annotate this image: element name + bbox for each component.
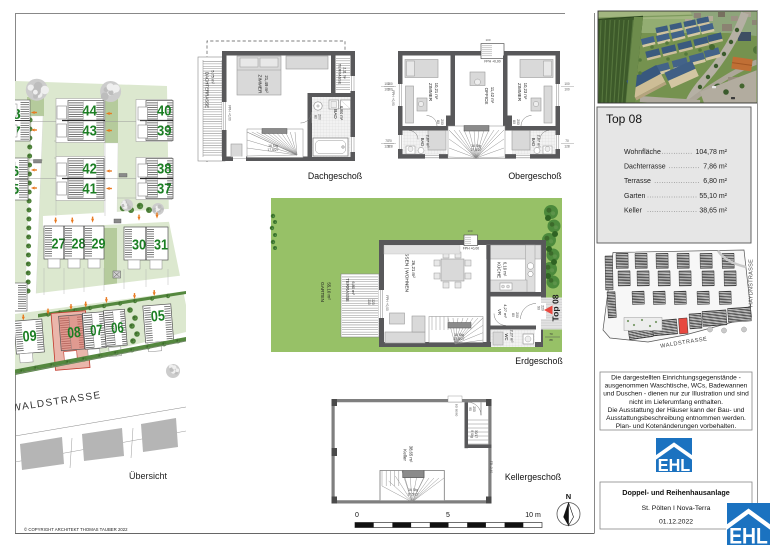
svg-text:100: 100: [467, 229, 472, 233]
svg-text:220: 220: [541, 305, 545, 311]
svg-text:Wohnfläche: Wohnfläche: [624, 149, 661, 156]
svg-text:220: 220: [371, 299, 375, 305]
svg-text:ZIMMER: ZIMMER: [428, 83, 433, 102]
svg-text:6,84 m²: 6,84 m²: [339, 106, 344, 121]
svg-text:27: 27: [52, 236, 66, 253]
svg-text:FPH +0,00: FPH +0,00: [484, 60, 500, 64]
svg-text:40: 40: [157, 103, 172, 120]
svg-text:FB -2,40: FB -2,40: [489, 461, 493, 473]
svg-text:06: 06: [111, 319, 125, 337]
svg-text:43: 43: [82, 123, 97, 140]
svg-text:17,5/27: 17,5/27: [407, 493, 418, 497]
svg-text:Plan- und Kotenänderungen vorb: Plan- und Kotenänderungen vorbehalten.: [616, 423, 737, 430]
svg-text:5,75 m²: 5,75 m²: [210, 70, 215, 84]
svg-text:42: 42: [82, 161, 97, 178]
svg-text:Kellergeschoß: Kellergeschoß: [505, 472, 562, 482]
svg-text:Terrasse: Terrasse: [624, 178, 651, 185]
svg-text:17,5/27: 17,5/27: [267, 148, 278, 152]
svg-text:30/17: 30/17: [474, 430, 478, 438]
svg-text:Erdgeschoß: Erdgeschoß: [515, 356, 563, 366]
svg-text:210: 210: [367, 299, 371, 305]
svg-text:Die dargestellten Einrichtungs: Die dargestellten Einrichtungsgegenständ…: [611, 375, 741, 382]
svg-text:St. Pölten I Nova-Terra: St. Pölten I Nova-Terra: [642, 505, 711, 512]
svg-text:17,5/27: 17,5/27: [470, 148, 481, 152]
svg-text:41: 41: [82, 181, 97, 198]
svg-text:© COPYRIGHT ARCHITEKT THOMAS T: © COPYRIGHT ARCHITEKT THOMAS TAUBER 2022: [24, 527, 128, 532]
svg-text:DACHTERRASSE: DACHTERRASSE: [205, 72, 210, 108]
svg-text:70: 70: [388, 139, 392, 143]
svg-text:Doppel- und Reihenhausanlage: Doppel- und Reihenhausanlage: [622, 488, 729, 497]
svg-text:16 Stg: 16 Stg: [408, 488, 418, 492]
svg-text:30: 30: [132, 237, 146, 254]
svg-text:0: 0: [355, 512, 359, 519]
svg-text:ausgenommen Waschtische, WCs,: ausgenommen Waschtische, WCs, Badewannen: [605, 383, 748, 390]
svg-text:08: 08: [67, 324, 82, 342]
svg-text:WC: WC: [504, 334, 509, 341]
svg-text:44: 44: [82, 103, 97, 120]
svg-text:11,42 m²: 11,42 m²: [490, 87, 495, 104]
svg-text:Garten: Garten: [624, 193, 646, 200]
svg-text:Obergeschoß: Obergeschoß: [508, 171, 562, 181]
svg-text:80: 80: [314, 115, 318, 119]
svg-text:GARTEN: GARTEN: [319, 282, 325, 302]
svg-text:100: 100: [564, 88, 570, 92]
svg-text:HAYDNSTRASSE: HAYDNSTRASSE: [749, 259, 755, 307]
svg-text:09: 09: [22, 328, 37, 346]
svg-text:55,10 m²: 55,10 m²: [699, 193, 727, 200]
svg-text:FPH +0,00: FPH +0,00: [463, 247, 479, 251]
svg-text:2,87 m²: 2,87 m²: [537, 135, 541, 149]
svg-text:N: N: [566, 492, 571, 501]
svg-text:38,65 m²: 38,65 m²: [699, 207, 727, 214]
svg-text:Keller: Keller: [624, 207, 643, 214]
svg-text:100: 100: [387, 88, 393, 92]
svg-text:BD 80/80: BD 80/80: [455, 404, 459, 417]
svg-text:38,65 m²: 38,65 m²: [409, 446, 414, 463]
svg-text:4,27 m²: 4,27 m²: [503, 304, 508, 318]
svg-text:17,5/27: 17,5/27: [453, 337, 464, 341]
svg-text:TERRASSE: TERRASSE: [337, 64, 341, 85]
svg-text:VR: VR: [497, 309, 502, 315]
svg-text:ZIMMER: ZIMMER: [517, 83, 522, 102]
svg-text:7,86 m²: 7,86 m²: [703, 164, 727, 171]
svg-text:100: 100: [387, 82, 393, 86]
svg-text:200: 200: [472, 406, 476, 412]
svg-text:2,27 m²: 2,27 m²: [510, 330, 514, 344]
svg-text:28: 28: [72, 236, 86, 253]
svg-text:TERRASSE: TERRASSE: [345, 278, 350, 302]
svg-text:10,23 m²: 10,23 m²: [523, 83, 528, 100]
svg-text:6,80 m²: 6,80 m²: [703, 178, 727, 185]
svg-text:8 Stg: 8 Stg: [470, 430, 474, 438]
svg-text:70: 70: [565, 139, 569, 143]
svg-text:nicht im Lieferumfang enthalte: nicht im Lieferumfang enthalten.: [629, 399, 723, 406]
svg-text:Top 08: Top 08: [606, 112, 642, 126]
svg-text:FPH +0,90: FPH +0,90: [391, 90, 395, 106]
svg-text:128: 128: [564, 145, 570, 149]
svg-text:ZIMMER: ZIMMER: [257, 75, 263, 94]
svg-text:104,78 m²: 104,78 m²: [695, 149, 727, 156]
svg-text:26,21 m²: 26,21 m²: [411, 260, 416, 278]
svg-text:200: 200: [515, 312, 519, 318]
svg-text:200: 200: [318, 114, 322, 120]
svg-text:2,11 m²: 2,11 m²: [343, 67, 347, 79]
svg-text:21,49 m²: 21,49 m²: [264, 75, 269, 93]
svg-text:37: 37: [157, 181, 172, 198]
svg-text:6,80 m²: 6,80 m²: [351, 281, 356, 295]
svg-text:128: 128: [387, 145, 393, 149]
svg-text:10,21 m²: 10,21 m²: [434, 83, 439, 100]
svg-text:Dachterrasse: Dachterrasse: [624, 164, 666, 171]
svg-text:EHL: EHL: [729, 524, 768, 545]
svg-text:39: 39: [157, 123, 172, 140]
svg-text:90: 90: [468, 407, 472, 411]
svg-text:FPH +0,00: FPH +0,00: [227, 105, 231, 121]
svg-text:Ausstattungsbeschreibung entno: Ausstattungsbeschreibung entnommen werde…: [606, 415, 746, 422]
svg-text:ESSEN | WOHNEN: ESSEN | WOHNEN: [403, 250, 409, 293]
svg-text:5: 5: [446, 512, 450, 519]
svg-text:BAD: BAD: [420, 138, 425, 147]
svg-text:OFFICE: OFFICE: [484, 88, 489, 105]
svg-text:Top 08: Top 08: [551, 294, 561, 321]
svg-text:70: 70: [549, 332, 553, 336]
svg-text:88: 88: [549, 338, 553, 342]
svg-text:10 m: 10 m: [525, 512, 541, 519]
svg-text:80: 80: [511, 313, 515, 317]
svg-text:EHL: EHL: [658, 455, 691, 475]
svg-text:07: 07: [90, 322, 104, 340]
svg-text:2,87 m²: 2,87 m²: [426, 135, 430, 149]
svg-text:55,10 m²: 55,10 m²: [326, 282, 331, 300]
svg-text:100: 100: [564, 82, 570, 86]
svg-text:01.12.2022: 01.12.2022: [659, 519, 693, 526]
svg-text:6,10 m²: 6,10 m²: [503, 262, 508, 277]
svg-text:31: 31: [154, 237, 168, 254]
svg-text:Keller: Keller: [403, 449, 408, 461]
svg-text:FPH +0,00: FPH +0,00: [385, 295, 389, 311]
svg-text:200: 200: [516, 119, 520, 125]
svg-text:100: 100: [485, 38, 490, 42]
svg-text:200: 200: [440, 119, 444, 125]
svg-text:38: 38: [157, 161, 172, 178]
svg-text:KÜCHE: KÜCHE: [497, 262, 503, 278]
svg-text:Übersicht: Übersicht: [129, 471, 168, 481]
svg-text:29: 29: [92, 236, 106, 253]
svg-text:BAD: BAD: [333, 109, 338, 119]
svg-text:Dachgeschoß: Dachgeschoß: [308, 171, 363, 181]
svg-text:BAD: BAD: [531, 138, 536, 147]
svg-text:Die Ausstattung der Häuser kan: Die Ausstattung der Häuser kann der Bau-…: [608, 407, 745, 414]
svg-text:80: 80: [512, 120, 516, 124]
svg-text:und Duschen - dienen nur zur I: und Duschen - dienen nur zur Illustratio…: [603, 391, 749, 398]
svg-text:90: 90: [537, 306, 541, 310]
svg-text:80: 80: [436, 120, 440, 124]
svg-text:05: 05: [150, 307, 165, 325]
